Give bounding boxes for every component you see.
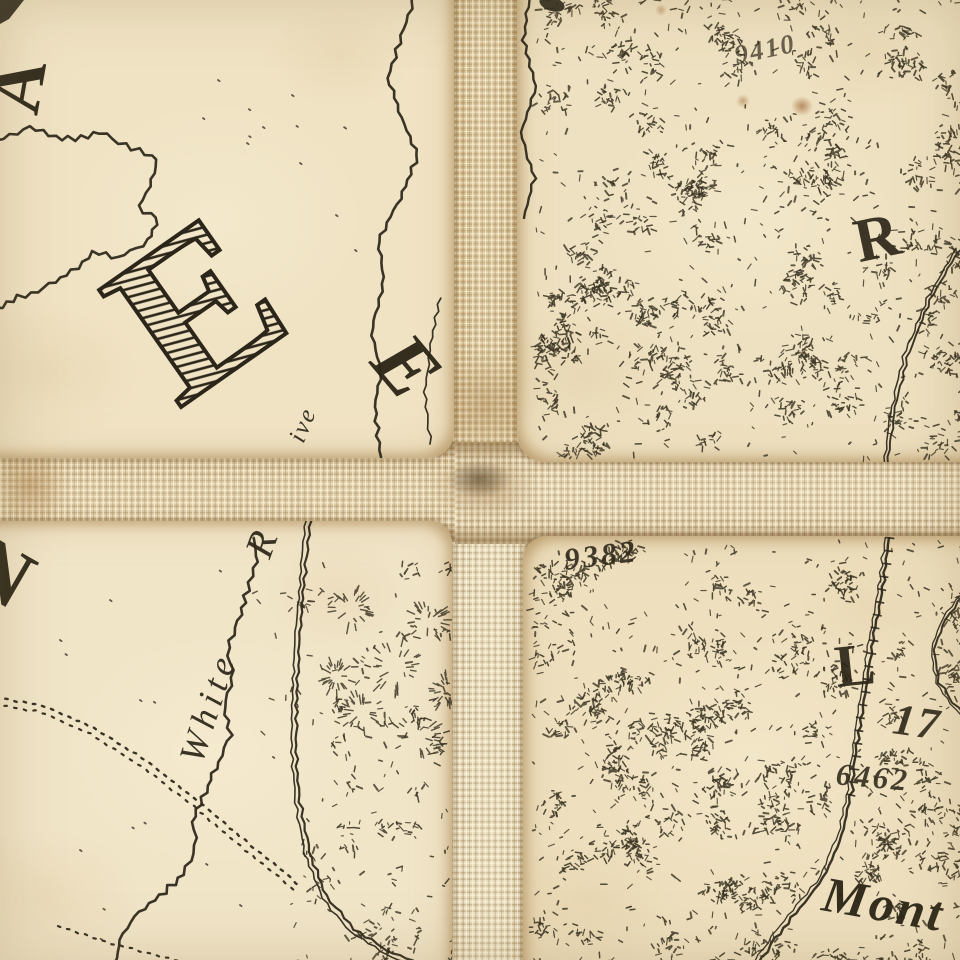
map-panel-bottom-right [523, 536, 960, 960]
dissected-map-scan: AEEiveR9410RWhiteNL9382176462Mont [0, 0, 960, 960]
map-panel-top-right [517, 0, 960, 462]
linen-strip-vertical-bottom [440, 495, 536, 960]
map-panel-bottom-left [0, 521, 452, 960]
map-panel-top-left [0, 0, 454, 458]
